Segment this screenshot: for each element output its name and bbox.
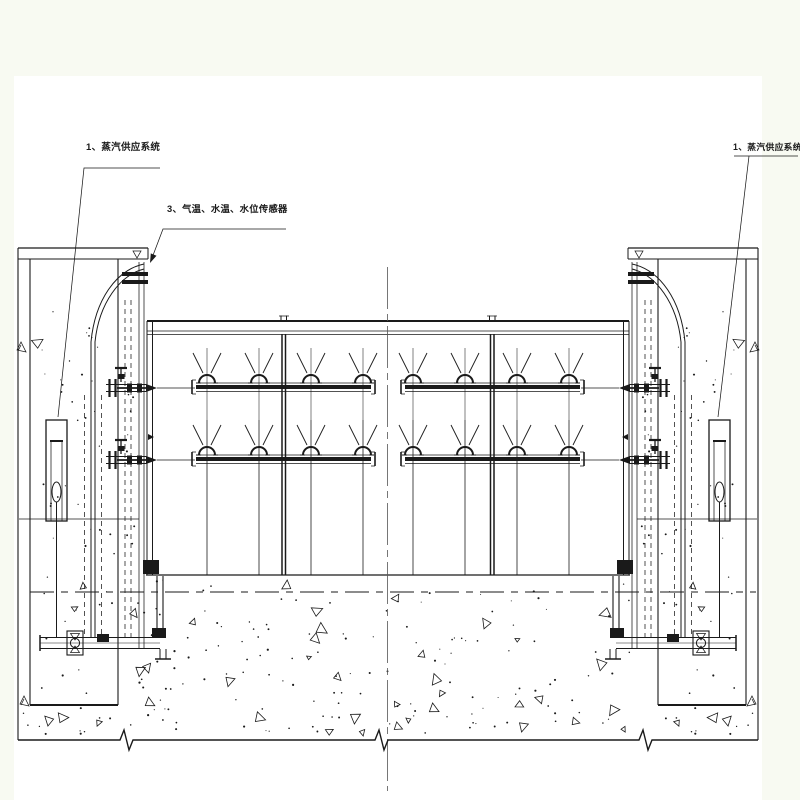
aggregate-dot (130, 724, 132, 726)
aggregate-dot (413, 715, 414, 716)
aggregate-dot (333, 692, 335, 694)
aggregate-dot (416, 642, 417, 643)
aggregate-dot (629, 652, 630, 653)
aggregate-dot (133, 525, 135, 527)
aggregate-dot (534, 640, 536, 642)
aggregate-dot (549, 683, 551, 685)
aggregate-dot (210, 585, 212, 587)
aggregate-dot (313, 700, 314, 701)
aggregate-dot (537, 597, 539, 599)
aggregate-dot (281, 598, 283, 600)
elbow-fitting (610, 628, 624, 638)
aggregate-dot (661, 553, 663, 555)
aggregate-dot (643, 543, 645, 545)
aggregate-dot (204, 610, 205, 611)
pipe-band (405, 457, 580, 461)
aggregate-dot (81, 374, 83, 376)
aggregate-dot (623, 583, 624, 584)
aggregate-dot (714, 391, 716, 393)
aggregate-dot (111, 602, 113, 604)
aggregate-dot (216, 622, 218, 624)
aggregate-dot (338, 717, 340, 719)
aggregate-dot (469, 727, 471, 729)
aggregate-dot (706, 360, 707, 361)
aggregate-dot (57, 496, 59, 498)
aggregate-dot (265, 730, 266, 731)
aggregate-dot (697, 669, 698, 670)
aggregate-dot (736, 726, 737, 727)
technical-drawing: 1、蒸汽供应系统 3、气温、水温、水位传感器 1、蒸汽供应系统 (0, 0, 800, 800)
aggregate-dot (451, 639, 453, 641)
aggregate-dot (322, 715, 324, 717)
bottom-bracket (617, 560, 633, 574)
aggregate-dot (69, 360, 70, 361)
aggregate-dot (397, 705, 399, 707)
aggregate-dot (60, 379, 61, 380)
aggregate-dot (444, 663, 445, 664)
aggregate-dot (80, 733, 82, 735)
aggregate-dot (665, 717, 667, 719)
aggregate-dot (268, 674, 270, 676)
aggregate-dot (731, 593, 733, 595)
aggregate-dot (77, 420, 79, 422)
aggregate-dot (731, 373, 732, 374)
aggregate-dot (534, 690, 536, 692)
aggregate-dot (434, 660, 436, 662)
aggregate-dot (187, 637, 189, 639)
aggregate-dot (99, 445, 100, 446)
aggregate-dot (477, 640, 479, 642)
aggregate-dot (99, 529, 101, 531)
aggregate-dot (554, 712, 556, 714)
aggregate-dot (717, 496, 719, 498)
pipe-band (405, 385, 580, 389)
aggregate-dot (588, 675, 589, 676)
aggregate-dot (331, 716, 333, 718)
aggregate-dot (689, 545, 691, 547)
aggregate-dot (288, 727, 290, 729)
aggregate-dot (345, 638, 347, 640)
aggregate-dot (546, 609, 547, 610)
aggregate-dot (728, 576, 729, 577)
aggregate-dot (414, 710, 416, 712)
aggregate-dot (712, 384, 714, 386)
label-steam-supply-left: 1、蒸汽供应系统 (86, 141, 160, 153)
aggregate-dot (23, 713, 24, 714)
pipe-fitting (97, 634, 109, 642)
aggregate-dot (268, 628, 270, 630)
aggregate-dot (472, 722, 474, 724)
aggregate-dot (410, 703, 411, 704)
aggregate-dot (461, 638, 463, 640)
aggregate-dot (253, 628, 255, 630)
aggregate-dot (506, 722, 508, 724)
aggregate-dot (45, 733, 47, 735)
aggregate-dot (579, 712, 580, 713)
aggregate-dot (170, 688, 172, 690)
aggregate-dot (47, 576, 48, 577)
aggregate-dot (205, 649, 207, 651)
aggregate-dot (203, 678, 205, 680)
aggregate-dot (689, 417, 691, 419)
aggregate-dot (241, 641, 242, 642)
aggregate-dot (648, 434, 649, 435)
aggregate-dot (86, 332, 87, 333)
aggregate-dot (162, 719, 164, 721)
aggregate-dot (317, 651, 319, 653)
aggregate-dot (494, 726, 496, 728)
aggregate-dot (508, 650, 509, 651)
aggregate-dot (88, 335, 90, 337)
aggregate-dot (167, 708, 169, 710)
aggregate-dot (156, 661, 158, 663)
aggregate-dot (710, 621, 711, 622)
aggregate-dot (160, 699, 161, 700)
aggregate-dot (52, 311, 53, 312)
aggregate-dot (595, 651, 597, 653)
aggregate-dot (259, 655, 261, 657)
aggregate-dot (465, 640, 466, 641)
aggregate-dot (439, 649, 440, 650)
pipe-band (196, 457, 371, 461)
aggregate-dot (141, 678, 143, 680)
aggregate-dot (164, 708, 165, 709)
pipe-band (196, 385, 371, 389)
aggregate-dot (733, 350, 734, 351)
aggregate-dot (267, 649, 269, 651)
aggregate-dot (235, 699, 236, 700)
aggregate-dot (515, 694, 516, 695)
aggregate-dot (128, 394, 130, 396)
aggregate-dot (126, 450, 128, 452)
aggregate-dot (86, 692, 88, 694)
aggregate-dot (261, 708, 263, 710)
aggregate-dot (683, 380, 684, 381)
aggregate-dot (84, 545, 86, 547)
aggregate-dot (109, 717, 111, 719)
aggregate-dot (482, 708, 483, 709)
aggregate-dot (84, 731, 85, 732)
aggregate-dot (554, 679, 556, 681)
aggregate-dot (64, 621, 65, 622)
drawing-sheet (14, 76, 762, 800)
aggregate-dot (676, 717, 678, 719)
aggregate-dot (338, 702, 340, 704)
aggregate-dot (675, 529, 677, 531)
aggregate-dot (475, 723, 476, 724)
aggregate-dot (663, 602, 665, 604)
aggregate-dot (92, 380, 93, 381)
aggregate-dot (329, 602, 331, 604)
aggregate-dot (309, 633, 311, 635)
aggregate-dot (450, 653, 451, 654)
aggregate-dot (182, 683, 183, 684)
aggregate-dot (257, 636, 259, 638)
aggregate-dot (628, 600, 630, 602)
aggregate-dot (39, 726, 40, 727)
aggregate-dot (480, 594, 481, 595)
aggregate-dot (291, 658, 293, 660)
aggregate-dot (513, 624, 514, 625)
aggregate-dot (41, 687, 43, 689)
aggregate-dot (491, 611, 493, 613)
aggregate-dot (676, 445, 677, 446)
aggregate-dot (27, 724, 29, 726)
label-steam-supply-right: 1、蒸汽供应系统 (733, 141, 800, 152)
aggregate-dot (722, 538, 723, 539)
aggregate-dot (722, 311, 723, 312)
aggregate-dot (686, 335, 688, 337)
aggregate-dot (752, 713, 753, 714)
aggregate-dot (53, 538, 54, 539)
aggregate-dot (109, 533, 111, 535)
aggregate-dot (694, 707, 696, 709)
aggregate-dot (406, 626, 408, 628)
aggregate-dot (80, 707, 82, 709)
aggregate-dot (471, 713, 472, 714)
aggregate-dot (131, 543, 133, 545)
aggregate-dot (43, 483, 45, 485)
aggregate-dot (710, 485, 711, 486)
aggregate-dot (316, 731, 318, 733)
aggregate-dot (648, 450, 650, 452)
aggregate-dot (571, 699, 573, 701)
aggregate-dot (188, 656, 190, 658)
aggregate-dot (698, 420, 700, 422)
aggregate-dot (292, 684, 294, 686)
aggregate-dot (242, 672, 244, 674)
aggregate-dot (678, 347, 679, 348)
aggregate-dot (641, 525, 643, 527)
aggregate-dot (729, 733, 731, 735)
aggregate-dot (454, 637, 455, 638)
aggregate-dot (218, 645, 219, 646)
aggregate-dot (99, 604, 101, 606)
aggregate-dot (65, 485, 66, 486)
aggregate-dot (246, 659, 248, 661)
aggregate-dot (350, 673, 351, 674)
aggregate-dot (665, 533, 667, 535)
aggregate-dot (555, 720, 557, 722)
aggregate-dot (602, 722, 604, 724)
aggregate-dot (154, 709, 155, 710)
aggregate-dot (675, 604, 677, 606)
aggregate-dot (343, 633, 344, 634)
anchor-plate (122, 280, 148, 284)
aggregate-dot (389, 723, 390, 724)
aggregate-dot (312, 726, 314, 728)
aggregate-dot (43, 593, 45, 595)
aggregate-dot (424, 732, 426, 734)
aggregate-dot (147, 714, 149, 716)
aggregate-dot (547, 705, 549, 707)
pipe-fitting (667, 634, 679, 642)
aggregate-dot (85, 417, 87, 419)
aggregate-dot (62, 384, 64, 386)
aggregate-dot (173, 667, 175, 669)
aggregate-dot (341, 692, 343, 694)
aggregate-dot (373, 636, 374, 637)
aggregate-dot (126, 534, 128, 536)
aggregate-dot (386, 610, 388, 612)
aggregate-dot (689, 332, 690, 333)
aggregate-dot (429, 592, 431, 594)
aggregate-dot (159, 614, 161, 616)
aggregate-dot (691, 731, 692, 732)
aggregate-dot (693, 374, 695, 376)
aggregate-dot (732, 483, 734, 485)
aggregate-dot (498, 697, 499, 698)
aggregate-dot (686, 327, 688, 329)
aggregate-dot (449, 681, 451, 683)
aggregate-dot (77, 504, 78, 505)
aggregate-dot (295, 599, 297, 601)
aggregate-dot (138, 682, 140, 684)
aggregate-dot (42, 350, 43, 351)
aggregate-dot (226, 673, 227, 674)
label-sensors: 3、气温、水温、水位传感器 (167, 203, 288, 214)
aggregate-dot (712, 674, 714, 676)
aggregate-dot (282, 680, 283, 681)
aggregate-dot (176, 722, 178, 724)
aggregate-dot (249, 621, 250, 622)
aggregate-dot (360, 693, 362, 695)
aggregate-dot (715, 379, 716, 380)
elbow-fitting (152, 628, 166, 638)
aggregate-dot (446, 716, 447, 717)
aggregate-dot (202, 589, 204, 591)
aggregate-dot (647, 394, 649, 396)
aggregate-dot (88, 327, 90, 329)
aggregate-dot (71, 401, 73, 403)
aggregate-dot (642, 396, 644, 398)
aggregate-dot (519, 687, 521, 689)
aggregate-dot (113, 553, 115, 555)
aggregate-dot (132, 396, 134, 398)
aggregate-dot (78, 669, 79, 670)
aggregate-dot (221, 626, 222, 627)
aggregate-dot (611, 672, 613, 674)
aggregate-dot (472, 696, 474, 698)
aggregate-dot (137, 602, 139, 604)
aggregate-dot (608, 719, 609, 720)
aggregate-dot (747, 724, 749, 726)
aggregate-dot (697, 504, 698, 505)
aggregate-dot (369, 672, 371, 674)
aggregate-dot (733, 687, 735, 689)
aggregate-dot (99, 717, 101, 719)
aggregate-dot (694, 733, 696, 735)
aggregate-dot (689, 692, 691, 694)
aggregate-dot (695, 730, 696, 731)
aggregate-dot (703, 401, 705, 403)
aggregate-dot (44, 373, 45, 374)
bottom-bracket (143, 560, 159, 574)
aggregate-dot (648, 534, 650, 536)
aggregate-dot (421, 602, 422, 603)
aggregate-dot (173, 650, 175, 652)
aggregate-dot (62, 674, 64, 676)
aggregate-dot (79, 730, 80, 731)
aggregate-dot (266, 624, 268, 626)
aggregate-dot (511, 600, 512, 601)
aggregate-dot (165, 688, 167, 690)
aggregate-dot (243, 726, 245, 728)
aggregate-dot (142, 686, 144, 688)
aggregate-dot (269, 731, 270, 732)
aggregate-dot (97, 347, 98, 348)
anchor-plate (628, 280, 654, 284)
aggregate-dot (127, 434, 128, 435)
aggregate-dot (175, 728, 177, 730)
